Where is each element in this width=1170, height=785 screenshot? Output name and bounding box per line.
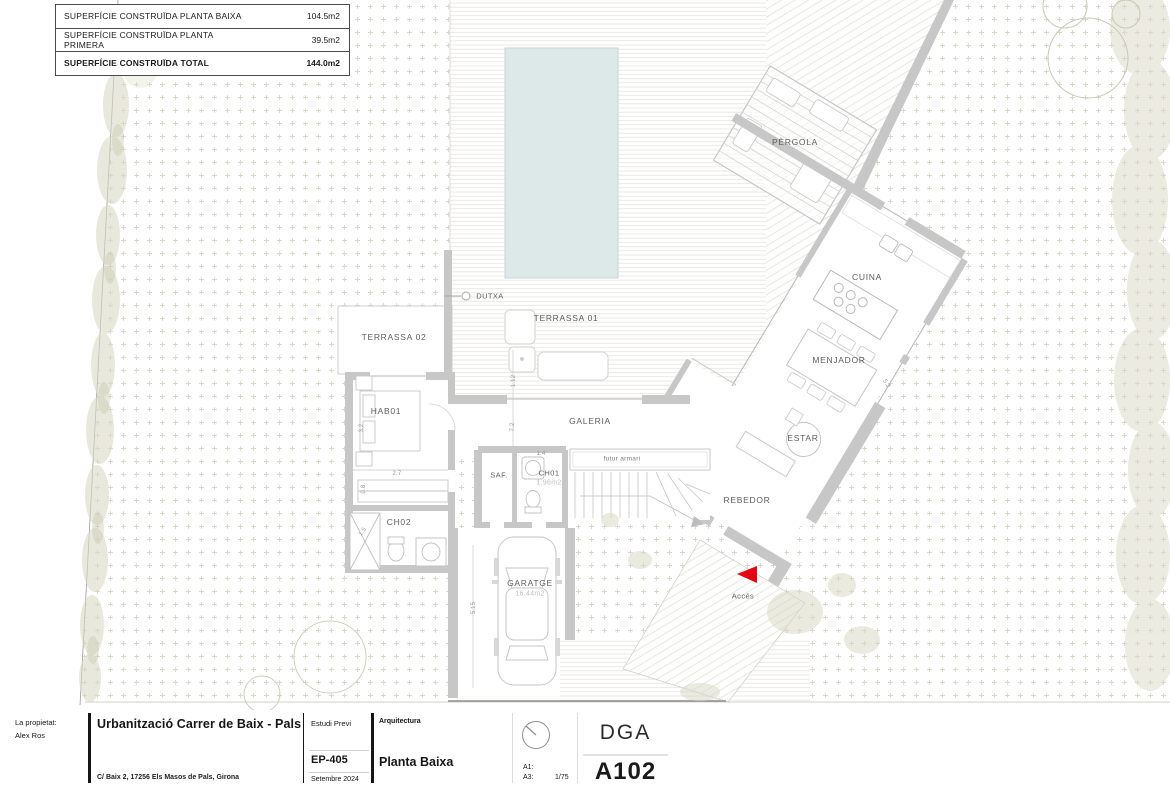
table-row: SUPERFÍCIE CONSTRUÏDA PLANTA BAIXA 104.5… (56, 5, 349, 29)
dim-label: 2.7 (393, 471, 402, 477)
label-pergola: PÈRGOLA (772, 137, 818, 147)
garage-car (492, 537, 562, 685)
label-hab01: HAB01 (371, 406, 401, 416)
label-terrassa01: TERRASSA 01 (534, 313, 599, 323)
sheet-number: A102 (583, 758, 668, 785)
label-ch02: CH02 (387, 517, 412, 527)
label-estar: ESTAR (787, 433, 818, 443)
scale-a1-label: A1: (523, 764, 534, 771)
divider (583, 754, 668, 756)
swimming-pool (505, 48, 618, 278)
dim-label: 3.2 (359, 424, 365, 433)
table-row-total: SUPERFÍCIE CONSTRUÏDA TOTAL 144.0m2 (56, 52, 349, 75)
architectural-sheet: PÈRGOLA CUINA MENJADOR ESTAR REBEDOR Acc… (0, 0, 1170, 785)
discipline-label: Arquitectura (379, 718, 421, 725)
label-garatge: GARATGE (507, 578, 553, 588)
surface-area-table: SUPERFÍCIE CONSTRUÏDA PLANTA BAIXA 104.5… (55, 4, 350, 76)
dim-label: 0.8 (361, 485, 367, 494)
dim-label: 1.4 (537, 451, 546, 457)
label-rebedor: REBEDOR (724, 495, 771, 505)
row-value: 39.5m2 (254, 35, 349, 45)
sheet-title: Planta Baixa (379, 755, 453, 769)
label-futur-armari: futur armari (604, 456, 641, 463)
divider (303, 713, 304, 783)
divider (512, 713, 513, 783)
label-saf: SAF. (490, 471, 507, 480)
label-terrassa02: TERRASSA 02 (362, 332, 427, 342)
owner-label: La propietat: (15, 718, 57, 727)
project-title: Urbanització Carrer de Baix - Pals (97, 717, 301, 731)
table-row: SUPERFÍCIE CONSTRUÏDA PLANTA PRIMERA 39.… (56, 29, 349, 53)
label-garatge-area: 16.44m2 (515, 591, 544, 598)
date-label: Setembre 2024 (311, 776, 359, 783)
north-arrow-icon (519, 718, 553, 752)
row-label: SUPERFÍCIE CONSTRUÏDA PLANTA PRIMERA (56, 30, 254, 50)
scale-a3-label: A3: (523, 774, 534, 781)
dim-label: 1.12 (511, 375, 517, 387)
label-galeria: GALERIA (569, 416, 611, 426)
divider (371, 713, 374, 783)
owner-name: Alex Ros (15, 731, 45, 740)
floor-plan-drawing (0, 0, 1170, 710)
scale-a3-value: 1/75 (555, 774, 569, 781)
label-cuina: CUINA (852, 272, 882, 282)
label-ch01: CH01 (539, 469, 560, 478)
dim-label: 5.15 (471, 602, 477, 614)
studio-logo-text: DGA (583, 721, 668, 745)
project-address: C/ Baix 2, 17256 Els Masos de Pals, Giro… (97, 774, 239, 781)
divider (88, 713, 91, 783)
project-code: EP-405 (311, 754, 348, 766)
row-value: 144.0m2 (254, 58, 349, 68)
label-ch01-area: 1.96m2 (536, 480, 561, 487)
title-block: La propietat: Alex Ros Urbanització Carr… (0, 710, 1170, 785)
divider (309, 750, 369, 751)
row-label: SUPERFÍCIE CONSTRUÏDA TOTAL (56, 58, 254, 68)
row-label: SUPERFÍCIE CONSTRUÏDA PLANTA BAIXA (56, 11, 254, 21)
phase-label: Estudi Previ (311, 719, 351, 728)
label-menjador: MENJADOR (812, 355, 865, 365)
divider (309, 772, 369, 773)
divider (577, 713, 578, 783)
label-dutxa: DUTXA (476, 292, 503, 301)
dim-label: 7.2 (510, 423, 516, 432)
row-value: 104.5m2 (254, 11, 349, 21)
label-acces: Accés (732, 592, 754, 601)
